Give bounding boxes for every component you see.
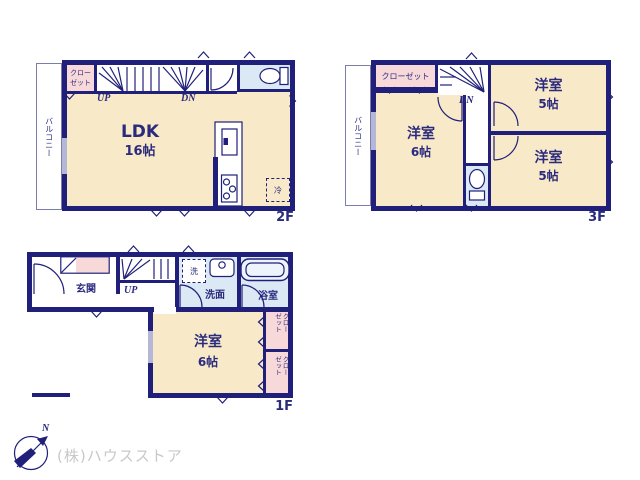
closet-1f-lower-label: クロー ゼット — [268, 356, 288, 392]
window-marker-icon — [197, 51, 210, 59]
floor-plan-page: バルコニー クロー ゼット UP DN LDK 16帖 冷 — [0, 0, 640, 480]
window-marker-icon — [465, 204, 478, 212]
closet-door-marker-icon — [383, 86, 396, 94]
window-marker-icon — [182, 245, 195, 253]
window-marker-icon — [150, 209, 163, 217]
stairs-dn-label: DN — [181, 93, 195, 104]
balcony-3f: バルコニー — [345, 65, 371, 206]
door-arc-icon — [492, 134, 518, 160]
stairs-icon — [120, 257, 175, 280]
window-marker-icon — [410, 204, 423, 212]
stairs-up-label: UP — [97, 93, 110, 104]
window-segment — [148, 331, 153, 363]
closet-3f-label: クローゼット — [382, 71, 430, 82]
closet-door-marker-icon — [258, 380, 266, 393]
window-marker-icon — [243, 209, 256, 217]
floor-3f-label: 3F — [570, 211, 606, 226]
balcony-3f-label: バルコニー — [353, 116, 362, 156]
ldk-size-label: 16帖 — [80, 145, 200, 160]
stairs-3f — [438, 65, 488, 95]
door-arc-icon — [178, 283, 203, 308]
floor-1f-label: 1F — [257, 400, 293, 415]
stairs-up-label: UP — [124, 285, 137, 296]
toilet-3f — [466, 163, 488, 206]
closet-2f: クロー ゼット — [67, 65, 97, 94]
wall — [266, 349, 290, 352]
room-3f-west-label: 洋室 — [376, 126, 466, 142]
door-arc-icon — [240, 283, 265, 308]
room-3f-se-size: 5帖 — [491, 170, 606, 184]
closet-door-marker-icon — [258, 316, 266, 329]
compass-icon — [10, 430, 54, 474]
closet-door-marker-icon — [258, 336, 266, 349]
room-3f-ne-label: 洋室 — [491, 78, 606, 94]
stairs-icon — [97, 65, 206, 91]
laundry-label: 洗 — [190, 266, 198, 277]
closet-door-marker-icon — [258, 358, 266, 371]
window-marker-icon — [465, 52, 478, 60]
window-marker-icon — [606, 91, 614, 104]
wall-stub — [32, 393, 70, 397]
room-1f-size: 6帖 — [148, 356, 268, 370]
stairs-icon — [438, 65, 488, 95]
toilet-icon — [466, 166, 488, 206]
bathtub-icon — [240, 258, 291, 282]
refrigerator-box: 冷 — [266, 178, 290, 202]
window-marker-icon — [90, 310, 103, 318]
window-marker-icon — [216, 396, 229, 404]
door-arc-icon — [209, 66, 236, 93]
room-3f-west-size: 6帖 — [376, 146, 466, 160]
window-marker-icon — [289, 95, 297, 108]
window-marker-icon — [606, 156, 614, 169]
company-name: (株)ハウスストア — [57, 448, 183, 465]
sink-icon — [209, 258, 235, 278]
window-marker-icon — [178, 209, 191, 217]
kitchen-counter-icon — [213, 121, 245, 207]
door-arc-icon — [492, 100, 518, 126]
entrance-label: 玄関 — [60, 284, 112, 296]
laundry-box: 洗 — [182, 259, 206, 283]
window-marker-icon — [127, 245, 140, 253]
room-1f — [148, 307, 268, 398]
balcony-2f-label: バルコニー — [44, 117, 53, 157]
refrigerator-label: 冷 — [274, 185, 282, 196]
closet-door-marker-icon — [413, 86, 426, 94]
closet-door-marker-icon — [63, 92, 76, 100]
window-marker-icon — [243, 51, 256, 59]
toilet-2f — [237, 65, 290, 92]
stairs-1f — [120, 257, 175, 283]
floor-2f-label: 2F — [258, 211, 294, 226]
window-segment — [371, 112, 376, 150]
window-segment — [62, 138, 67, 174]
compass-north-label: N — [42, 423, 49, 434]
shoe-cabinet-icon — [60, 256, 110, 274]
closet-1f-upper-label: クロー ゼット — [268, 313, 288, 347]
room-1f-label: 洋室 — [148, 334, 268, 350]
closet-2f-label: クロー ゼット — [70, 68, 91, 88]
toilet-icon — [240, 65, 290, 89]
ldk-label: LDK — [80, 123, 200, 143]
doorway-gap — [154, 307, 176, 314]
door-arc-icon — [438, 94, 464, 122]
stairs-2f — [97, 65, 206, 94]
balcony-2f: バルコニー — [36, 63, 62, 210]
